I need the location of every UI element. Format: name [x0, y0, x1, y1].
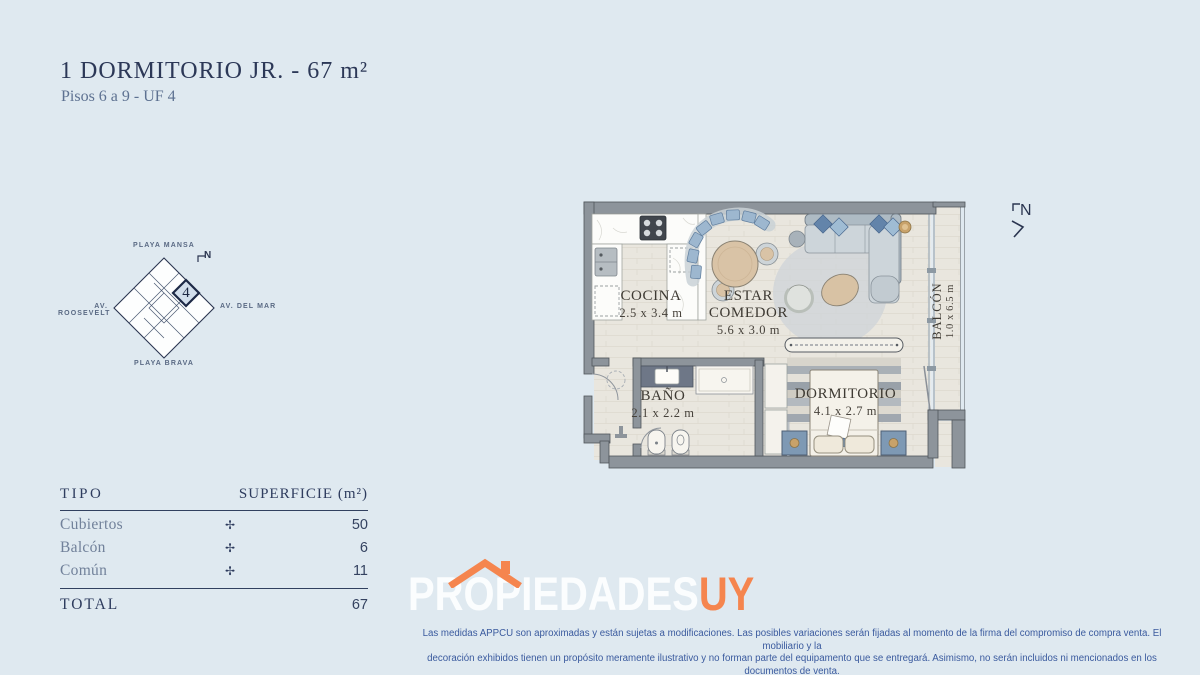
logo-text-suffix: UY [699, 567, 755, 620]
floorplan: COCINA 2.5 x 3.4 m ESTAR COMEDOR 5.6 x 3… [583, 198, 978, 486]
column-tipo: TIPO [60, 486, 103, 503]
room-label-balcon: BALCÓN 1.0 x 6.5 m [930, 256, 964, 366]
floorplan-drawing [583, 198, 978, 486]
stove-icon [640, 216, 666, 240]
north-label: N [1020, 202, 1032, 220]
building-keymap: PLAYA MANSA AV. ROOSEVELT AV. DEL MAR PL… [58, 232, 270, 377]
surface-table: TIPO SUPERFICIE (m²) Cubiertos ✢ 50 Balc… [60, 486, 368, 614]
north-indicator: N [998, 200, 1044, 246]
bidet-icon [672, 430, 689, 455]
keymap-label-playa-brava: PLAYA BRAVA [58, 360, 270, 367]
disclaimer-line-1: Las medidas APPCU son aproximadas y está… [414, 628, 1170, 653]
surface-table-header: TIPO SUPERFICIE (m²) [60, 486, 368, 511]
dining-table-icon [712, 241, 758, 287]
column-superficie: SUPERFICIE (m²) [239, 486, 368, 503]
disclaimer: Las medidas APPCU son aproximadas y está… [414, 628, 1170, 675]
keymap-north-label: N [204, 250, 211, 261]
roof-icon [446, 558, 524, 588]
table-row-balcon: Balcón ✢ 6 [60, 539, 368, 562]
cross-icon: ✢ [198, 518, 262, 533]
disclaimer-line-2: decoración exhibidos tienen un propósito… [414, 653, 1170, 675]
keymap-unit-number: 4 [177, 285, 195, 302]
room-label-estar-comedor: ESTAR COMEDOR 5.6 x 3.0 m [686, 288, 811, 337]
table-row-comun: Común ✢ 11 [60, 562, 368, 585]
table-row-cubiertos: Cubiertos ✢ 50 [60, 516, 368, 539]
page-subtitle: Pisos 6 a 9 - UF 4 [61, 88, 176, 106]
cross-icon: ✢ [198, 541, 262, 556]
cross-icon: ✢ [198, 564, 262, 579]
side-table-icon [789, 231, 805, 247]
keymap-label-playa-mansa: PLAYA MANSA [58, 242, 270, 249]
keymap-label-av-del-mar: AV. DEL MAR [220, 303, 280, 310]
page-title: 1 DORMITORIO JR. - 67 m² [60, 58, 368, 85]
table-row-total: TOTAL 67 [60, 588, 368, 614]
room-label-dormitorio: DORMITORIO 4.1 x 2.7 m [783, 386, 908, 418]
keymap-label-av-roosevelt: AV. ROOSEVELT [58, 303, 108, 317]
brochure-page: 1 DORMITORIO JR. - 67 m² Pisos 6 a 9 - U… [0, 0, 1200, 675]
room-label-bano: BAÑO 2.1 x 2.2 m [613, 388, 713, 420]
toilet-icon [648, 430, 665, 455]
